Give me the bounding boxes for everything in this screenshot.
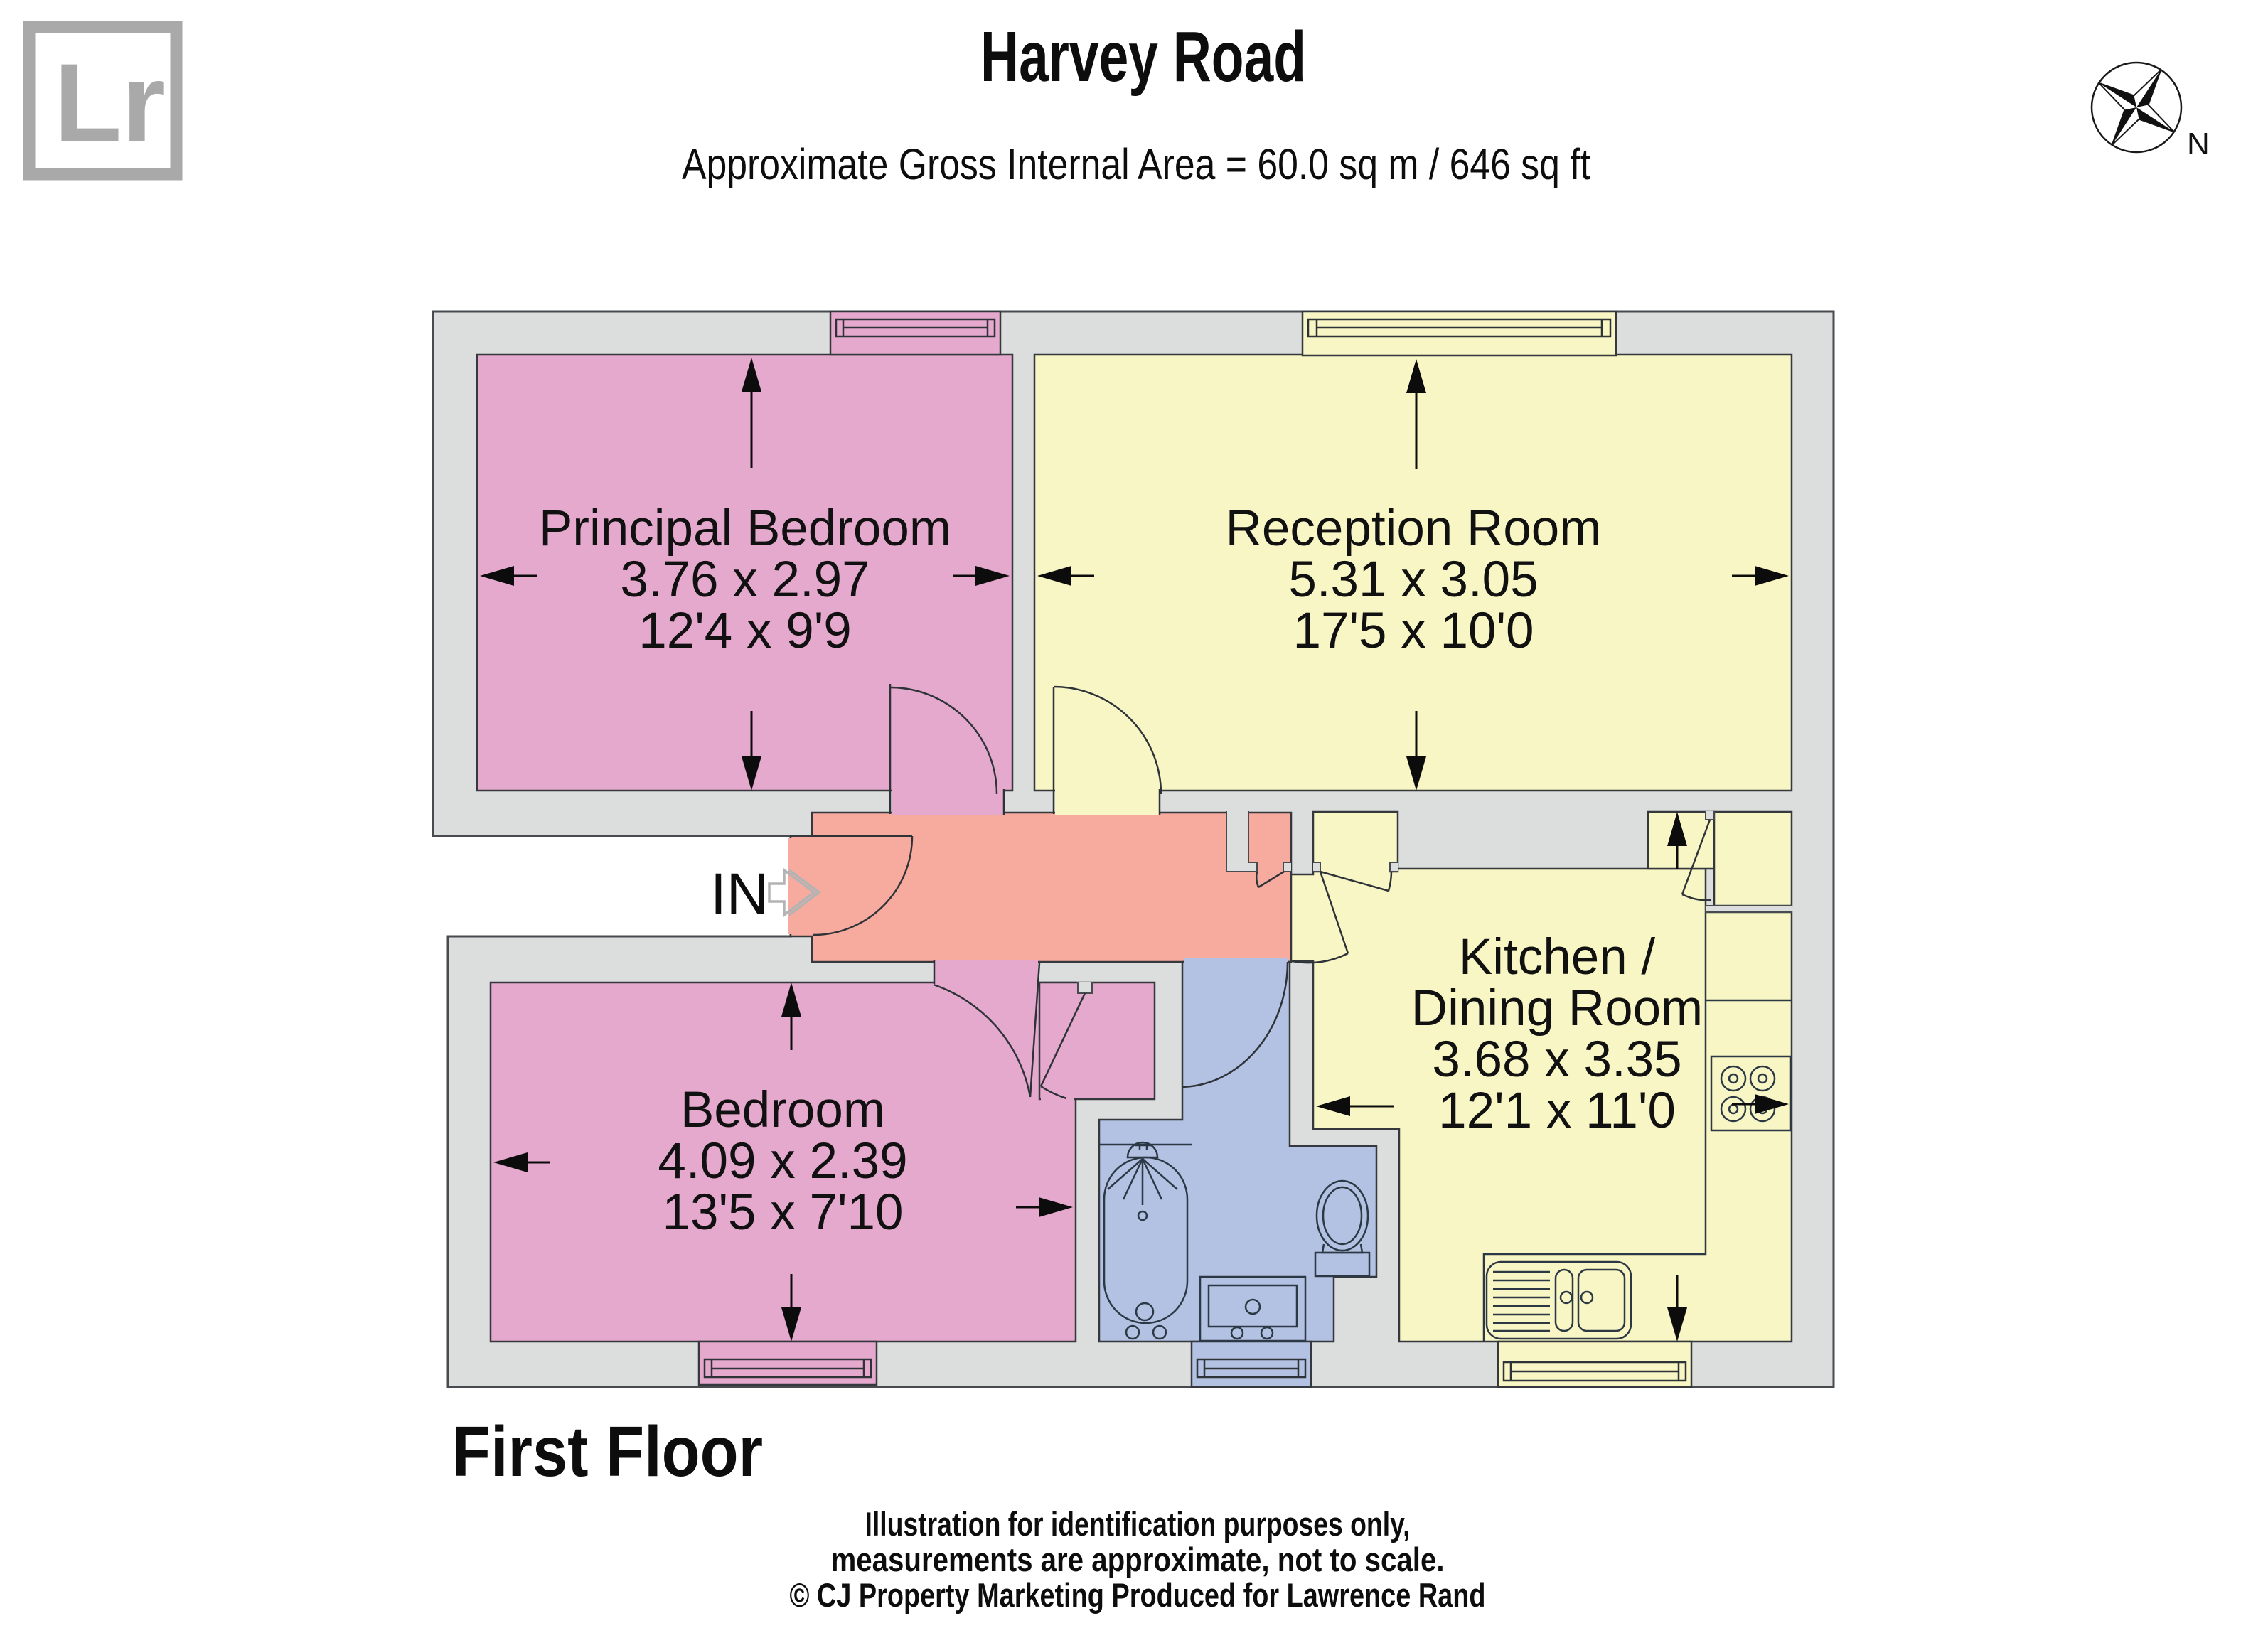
svg-text:4.09 x 2.39: 4.09 x 2.39 [658,1133,907,1189]
svg-text:13'5 x 7'10: 13'5 x 7'10 [663,1184,904,1241]
svg-text:12'4 x 9'9: 12'4 x 9'9 [638,603,852,659]
svg-text:measurements are approximate,: measurements are approximate, not to sca… [831,1541,1445,1578]
svg-text:© CJ Property Marketing Produ: © CJ Property Marketing Produced for Law… [790,1576,1486,1614]
svg-text:3.68 x 3.35: 3.68 x 3.35 [1432,1032,1681,1088]
svg-text:Lr: Lr [54,41,165,165]
svg-text:IN: IN [710,862,769,926]
svg-text:Kitchen /: Kitchen / [1459,929,1656,985]
svg-text:Illustration for identificatio: Illustration for identification purposes… [865,1505,1411,1543]
svg-text:Dining Room: Dining Room [1411,980,1703,1037]
svg-text:Bedroom: Bedroom [680,1082,885,1138]
svg-text:Principal Bedroom: Principal Bedroom [539,500,951,557]
svg-text:5.31 x 3.05: 5.31 x 3.05 [1288,552,1538,608]
svg-text:17'5 x 10'0: 17'5 x 10'0 [1293,603,1534,659]
svg-text:12'1 x 11'0: 12'1 x 11'0 [1438,1083,1676,1139]
svg-text:Harvey Road: Harvey Road [980,17,1306,97]
svg-text:First Floor: First Floor [452,1412,763,1492]
svg-text:Approximate Gross Internal Are: Approximate Gross Internal Area = 60.0 s… [682,140,1590,188]
svg-text:N: N [2187,127,2210,161]
svg-text:Reception Room: Reception Room [1226,500,1602,557]
svg-text:3.76 x 2.97: 3.76 x 2.97 [620,552,870,608]
